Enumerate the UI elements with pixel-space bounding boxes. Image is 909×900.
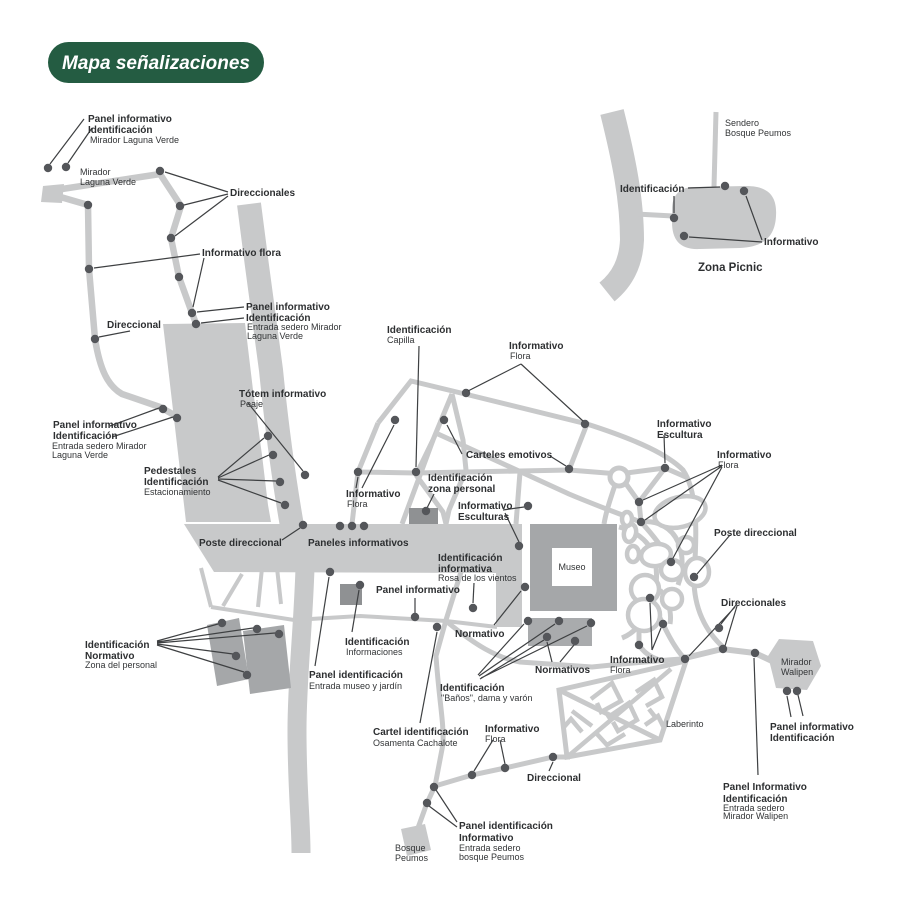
svg-text:Estacionamiento: Estacionamiento xyxy=(144,487,211,497)
svg-text:Informativo: Informativo xyxy=(764,237,818,248)
svg-text:Laguna Verde: Laguna Verde xyxy=(247,331,303,341)
svg-text:Direccional: Direccional xyxy=(107,320,161,331)
svg-text:Direccionales: Direccionales xyxy=(230,188,295,199)
svg-text:Laguna Verde: Laguna Verde xyxy=(80,177,136,187)
svg-text:Sendero: Sendero xyxy=(725,118,759,128)
svg-text:Laguna Verde: Laguna Verde xyxy=(52,450,108,460)
svg-text:Informativo: Informativo xyxy=(657,419,711,430)
svg-text:Normativos: Normativos xyxy=(535,665,590,676)
svg-text:Panel informativo: Panel informativo xyxy=(246,302,330,313)
svg-text:Identificación: Identificación xyxy=(85,640,149,651)
svg-text:Paneles informativos: Paneles informativos xyxy=(308,538,409,549)
svg-text:Mirador: Mirador xyxy=(781,657,812,667)
svg-text:Direccionales: Direccionales xyxy=(721,598,786,609)
svg-text:"Baños", dama y varón: "Baños", dama y varón xyxy=(441,693,532,703)
svg-text:Informativo: Informativo xyxy=(458,501,512,512)
svg-text:Mirador Laguna Verde: Mirador Laguna Verde xyxy=(90,135,179,145)
svg-text:Mirador Walipen: Mirador Walipen xyxy=(723,811,788,821)
svg-text:Panel informativo: Panel informativo xyxy=(88,114,172,125)
svg-text:Museo: Museo xyxy=(558,562,585,572)
svg-text:Poste direccional: Poste direccional xyxy=(199,538,282,549)
svg-text:Carteles emotivos: Carteles emotivos xyxy=(466,450,553,461)
svg-text:Mapa señalizaciones: Mapa señalizaciones xyxy=(62,53,250,74)
svg-text:Rosa de los vientos: Rosa de los vientos xyxy=(438,573,517,583)
svg-text:Peumos: Peumos xyxy=(395,853,429,863)
svg-text:Panel informativo: Panel informativo xyxy=(53,420,137,431)
svg-text:Escultura: Escultura xyxy=(657,430,703,441)
svg-text:Panel informativo: Panel informativo xyxy=(376,585,460,596)
svg-text:Panel informativo: Panel informativo xyxy=(770,722,854,733)
svg-text:Panel identificación: Panel identificación xyxy=(309,670,403,681)
svg-text:Cartel identificación: Cartel identificación xyxy=(373,727,469,738)
svg-text:Informaciones: Informaciones xyxy=(346,647,403,657)
svg-text:Identificación: Identificación xyxy=(620,184,684,195)
svg-text:Walipen: Walipen xyxy=(781,667,813,677)
svg-text:Zona del personal: Zona del personal xyxy=(85,660,157,670)
svg-text:Flora: Flora xyxy=(718,460,739,470)
svg-text:Flora: Flora xyxy=(510,351,531,361)
svg-text:Peaje: Peaje xyxy=(240,399,263,409)
svg-text:Mirador: Mirador xyxy=(80,167,111,177)
svg-text:Pedestales: Pedestales xyxy=(144,466,197,477)
svg-text:Panel identificación: Panel identificación xyxy=(459,821,553,832)
svg-text:Flora: Flora xyxy=(610,665,631,675)
svg-text:Osamenta Cachalote: Osamenta Cachalote xyxy=(373,738,458,748)
svg-text:Bosque Peumos: Bosque Peumos xyxy=(725,128,792,138)
svg-text:Laberinto: Laberinto xyxy=(666,719,704,729)
svg-text:Identificación: Identificación xyxy=(770,733,834,744)
svg-text:Informativo flora: Informativo flora xyxy=(202,248,281,259)
svg-text:Bosque: Bosque xyxy=(395,843,426,853)
svg-text:Direccional: Direccional xyxy=(527,773,581,784)
svg-text:Capilla: Capilla xyxy=(387,335,415,345)
svg-text:Zona Picnic: Zona Picnic xyxy=(698,262,763,274)
svg-text:Entrada museo y jardín: Entrada museo y jardín xyxy=(309,681,402,691)
svg-text:Flora: Flora xyxy=(485,734,506,744)
svg-text:Poste direccional: Poste direccional xyxy=(714,528,797,539)
svg-text:Identificación: Identificación xyxy=(428,473,492,484)
svg-text:Flora: Flora xyxy=(347,499,368,509)
svg-text:bosque Peumos: bosque Peumos xyxy=(459,852,525,862)
svg-text:Panel Informativo: Panel Informativo xyxy=(723,782,807,793)
svg-text:Normativo: Normativo xyxy=(455,629,504,640)
svg-text:Esculturas: Esculturas xyxy=(458,512,510,523)
svg-text:Identificación: Identificación xyxy=(438,553,502,564)
svg-text:zona personal: zona personal xyxy=(428,484,495,495)
